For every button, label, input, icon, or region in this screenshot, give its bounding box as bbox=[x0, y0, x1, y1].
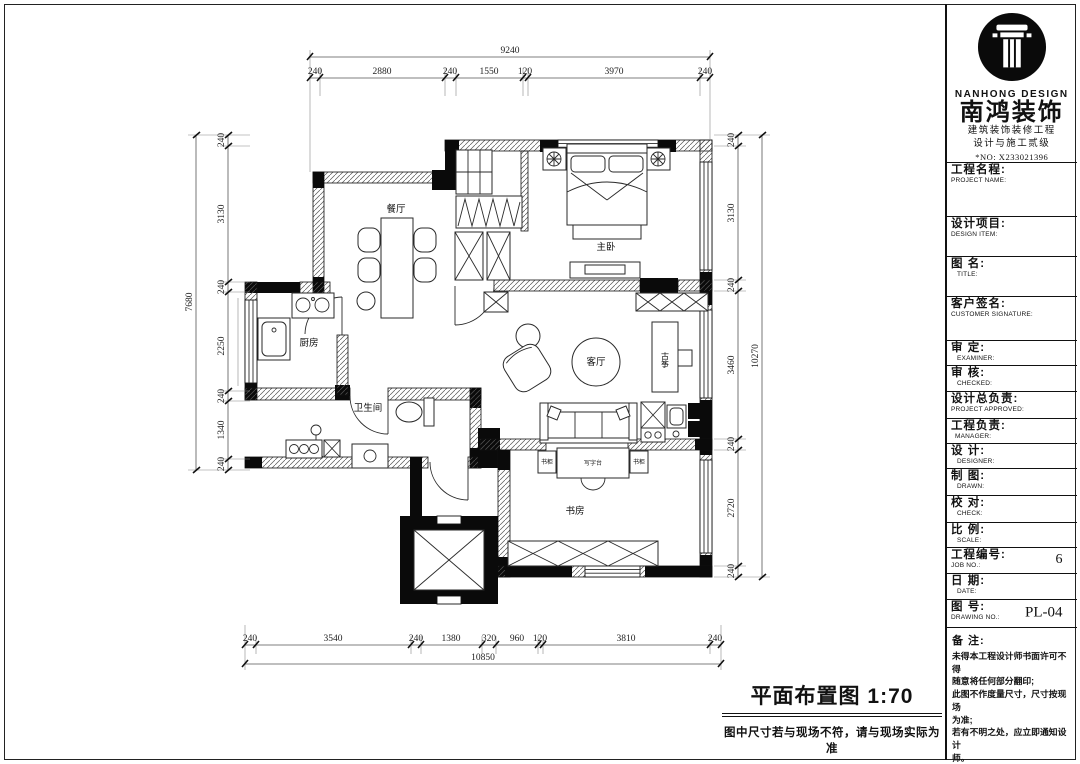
label-kitchen: 厨房 bbox=[299, 337, 318, 349]
field-project-approved: 设计总负责: PROJECT APPROVED: bbox=[947, 391, 1077, 418]
svg-text:240: 240 bbox=[217, 457, 227, 472]
field-drawing-no: 图 号: DRAWING NO.: PL-04 bbox=[947, 599, 1077, 627]
svg-text:240: 240 bbox=[698, 67, 713, 77]
field-date: 日 期: DATE: bbox=[947, 573, 1077, 599]
notes-section: 备 注: 未得本工程设计师书面许可不得 随意将任何部分翻印; 此图不作度量尺寸，… bbox=[947, 627, 1077, 764]
field-check: 校 对: CHECK: bbox=[947, 495, 1077, 522]
drawing-no-value: PL-04 bbox=[1025, 605, 1063, 622]
field-cn-label: 审 核: bbox=[951, 367, 1073, 380]
drawing-caption: 平面布置图 1:70 图中尺寸若与现场不符，请与现场实际为准 bbox=[722, 680, 942, 756]
field-cn-label: 设计项目: bbox=[951, 218, 1073, 231]
dim-bottom: 240 3540 240 1380 320 960 120 3810 240 1… bbox=[242, 625, 724, 670]
field-customer-signature: 客户签名: CUSTOMER SIGNATURE: bbox=[947, 296, 1077, 340]
svg-text:240: 240 bbox=[727, 564, 737, 579]
floor-plan-svg: 餐厅 主卧 厨房 卫生间 客厅 古筝 书房 写字台 书柜 书柜 9240 240… bbox=[0, 0, 945, 764]
svg-text:240: 240 bbox=[443, 67, 458, 77]
furniture bbox=[258, 144, 708, 566]
field-cn-label: 制 图: bbox=[951, 470, 1073, 483]
brand-subtitle-1: 建筑装饰装修工程 bbox=[947, 125, 1077, 137]
field-en-label: PROJECT APPROVED: bbox=[951, 406, 1073, 413]
field-checked: 审 核: CHECKED: bbox=[947, 365, 1077, 391]
field-cn-label: 校 对: bbox=[951, 497, 1073, 510]
field-cn-label: 工程编号: bbox=[951, 549, 1073, 562]
title-block: NANHONG DESIGN 南鸿装饰 建筑装饰装修工程 设计与施工贰级 *NO… bbox=[945, 4, 1077, 760]
dim-left: 7680 240 3130 240 2250 240 1340 240 bbox=[185, 132, 250, 473]
svg-text:3130: 3130 bbox=[727, 203, 737, 222]
field-cn-label: 设计总负责: bbox=[951, 393, 1073, 406]
field-project-name: 工程名程: PROJECT NAME: bbox=[947, 162, 1077, 216]
label-bathroom: 卫生间 bbox=[354, 402, 383, 414]
company-logo-icon bbox=[977, 12, 1047, 82]
svg-text:240: 240 bbox=[217, 133, 227, 148]
field-examiner: 审 定: EXAMINER: bbox=[947, 340, 1077, 365]
svg-text:240: 240 bbox=[727, 437, 737, 452]
field-cn-label: 审 定: bbox=[951, 342, 1073, 355]
field-cn-label: 比 例: bbox=[951, 524, 1073, 537]
label-bookcase-left: 书柜 bbox=[541, 458, 553, 466]
brand-subtitle-2: 设计与施工贰级 bbox=[947, 138, 1077, 150]
field-cn-label: 客户签名: bbox=[951, 298, 1073, 311]
field-cn-label: 图 名: bbox=[951, 258, 1073, 271]
svg-text:3130: 3130 bbox=[217, 204, 227, 223]
svg-text:240: 240 bbox=[243, 634, 258, 644]
drawing-disclaimer: 图中尺寸若与现场不符，请与现场实际为准 bbox=[722, 724, 942, 756]
svg-text:120: 120 bbox=[533, 634, 548, 644]
field-en-label: PROJECT NAME: bbox=[951, 177, 1073, 184]
drawing-title: 平面布置图 1:70 bbox=[722, 680, 942, 717]
field-design-item: 设计项目: DESIGN ITEM: bbox=[947, 216, 1077, 256]
field-drawn: 制 图: DRAWN: bbox=[947, 468, 1077, 495]
dim-right: 240 3130 240 3460 240 2720 240 10270 bbox=[714, 132, 770, 580]
svg-text:10850: 10850 bbox=[471, 653, 495, 663]
field-job-no: 工程编号: JOB NO.: 6 bbox=[947, 547, 1077, 573]
job-no-value: 6 bbox=[1056, 552, 1063, 568]
field-title: 图 名: TITLE: bbox=[947, 256, 1077, 296]
brand-header: NANHONG DESIGN 南鸿装饰 建筑装饰装修工程 设计与施工贰级 *NO… bbox=[947, 4, 1077, 162]
svg-text:240: 240 bbox=[708, 634, 723, 644]
svg-text:240: 240 bbox=[217, 280, 227, 295]
svg-text:240: 240 bbox=[308, 67, 323, 77]
label-bookcase-right: 书柜 bbox=[633, 458, 645, 466]
label-dining: 餐厅 bbox=[386, 203, 406, 215]
svg-text:10270: 10270 bbox=[751, 344, 761, 368]
svg-text:2720: 2720 bbox=[727, 498, 737, 517]
svg-text:3460: 3460 bbox=[727, 355, 737, 374]
notes-body: 未得本工程设计师书面许可不得 随意将任何部分翻印; 此图不作度量尺寸，尺寸按现场… bbox=[952, 650, 1072, 764]
field-manager: 工程负责: MANAGER: bbox=[947, 418, 1077, 443]
svg-text:9240: 9240 bbox=[501, 46, 520, 56]
label-desk: 写字台 bbox=[584, 459, 602, 467]
svg-text:960: 960 bbox=[510, 634, 525, 644]
field-en-label: DESIGN ITEM: bbox=[951, 231, 1073, 238]
svg-text:2880: 2880 bbox=[373, 67, 392, 77]
svg-text:3970: 3970 bbox=[605, 67, 624, 77]
field-cn-label: 工程名程: bbox=[951, 164, 1073, 177]
field-en-label: MANAGER: bbox=[951, 433, 1073, 440]
field-en-label: DATE: bbox=[951, 588, 1073, 595]
field-en-label: CUSTOMER SIGNATURE: bbox=[951, 311, 1073, 318]
label-guzheng: 古筝 bbox=[661, 351, 670, 368]
field-en-label: CHECKED: bbox=[951, 380, 1073, 387]
svg-text:320: 320 bbox=[482, 634, 497, 644]
field-en-label: SCALE: bbox=[951, 537, 1073, 544]
field-en-label: CHECK: bbox=[951, 510, 1073, 517]
svg-text:240: 240 bbox=[727, 133, 737, 148]
svg-text:240: 240 bbox=[217, 389, 227, 404]
svg-text:1340: 1340 bbox=[217, 420, 227, 439]
field-en-label: DESIGNER: bbox=[951, 458, 1073, 465]
label-living: 客厅 bbox=[586, 356, 606, 368]
svg-text:1380: 1380 bbox=[442, 634, 461, 644]
field-en-label: EXAMINER: bbox=[951, 355, 1073, 362]
notes-title: 备 注: bbox=[952, 632, 1072, 648]
field-cn-label: 工程负责: bbox=[951, 420, 1073, 433]
field-en-label: DRAWN: bbox=[951, 483, 1073, 490]
field-cn-label: 设 计: bbox=[951, 445, 1073, 458]
field-designer: 设 计: DESIGNER: bbox=[947, 443, 1077, 468]
svg-text:240: 240 bbox=[727, 278, 737, 293]
field-en-label: JOB NO.: bbox=[951, 562, 1073, 569]
svg-text:240: 240 bbox=[409, 634, 424, 644]
svg-text:7680: 7680 bbox=[185, 292, 195, 311]
label-study: 书房 bbox=[565, 505, 584, 517]
svg-text:3540: 3540 bbox=[324, 634, 343, 644]
drawing-sheet: 餐厅 主卧 厨房 卫生间 客厅 古筝 书房 写字台 书柜 书柜 9240 240… bbox=[0, 0, 1080, 764]
svg-text:1550: 1550 bbox=[480, 67, 499, 77]
brand-license-no: *NO: X233021396 bbox=[947, 152, 1077, 162]
field-cn-label: 日 期: bbox=[951, 575, 1073, 588]
field-en-label: TITLE: bbox=[951, 271, 1073, 278]
svg-text:120: 120 bbox=[518, 67, 533, 77]
svg-text:2250: 2250 bbox=[217, 336, 227, 355]
brand-name-cn: 南鸿装饰 bbox=[947, 100, 1077, 125]
field-scale: 比 例: SCALE: bbox=[947, 522, 1077, 547]
label-master-bedroom: 主卧 bbox=[596, 241, 616, 253]
svg-text:3810: 3810 bbox=[617, 634, 636, 644]
